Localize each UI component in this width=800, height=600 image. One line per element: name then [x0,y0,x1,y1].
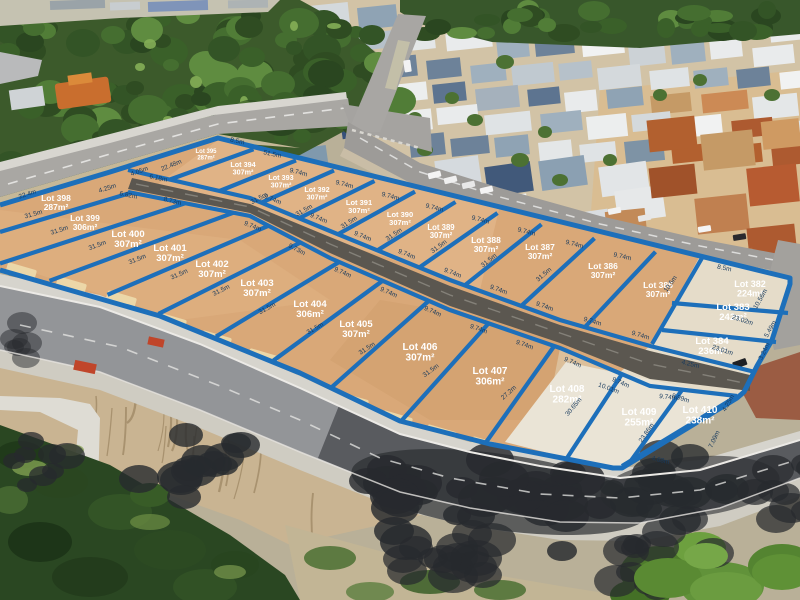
svg-text:Lot 400307m²: Lot 400307m² [111,229,144,250]
svg-text:Lot 389307m²: Lot 389307m² [427,223,455,240]
svg-text:Lot 395287m²: Lot 395287m² [195,149,217,161]
svg-text:Lot 386307m²: Lot 386307m² [588,261,618,280]
svg-text:Lot 405307m²: Lot 405307m² [339,319,373,340]
svg-text:Lot 404306m²: Lot 404306m² [293,299,327,320]
svg-text:Lot 406307m²: Lot 406307m² [402,342,437,364]
svg-text:Lot 402307m²: Lot 402307m² [195,259,228,280]
svg-text:Lot 392307m²: Lot 392307m² [304,185,329,202]
svg-text:Lot 410238m²: Lot 410238m² [682,405,717,427]
svg-text:Lot 399306m²: Lot 399306m² [70,213,100,232]
svg-text:Lot 387307m²: Lot 387307m² [525,242,555,261]
svg-text:Lot 407306m²: Lot 407306m² [472,366,507,388]
svg-text:Lot 394307m²: Lot 394307m² [230,160,255,177]
svg-text:Lot 391307m²: Lot 391307m² [346,198,372,215]
svg-text:Lot 403307m²: Lot 403307m² [240,278,273,299]
svg-text:Lot 390307m²: Lot 390307m² [387,210,413,227]
svg-text:Lot 393307m²: Lot 393307m² [268,173,293,190]
svg-text:Lot 398287m²: Lot 398287m² [41,193,71,212]
svg-text:Lot 401307m²: Lot 401307m² [153,243,187,264]
svg-text:Lot 388307m²: Lot 388307m² [471,235,501,254]
